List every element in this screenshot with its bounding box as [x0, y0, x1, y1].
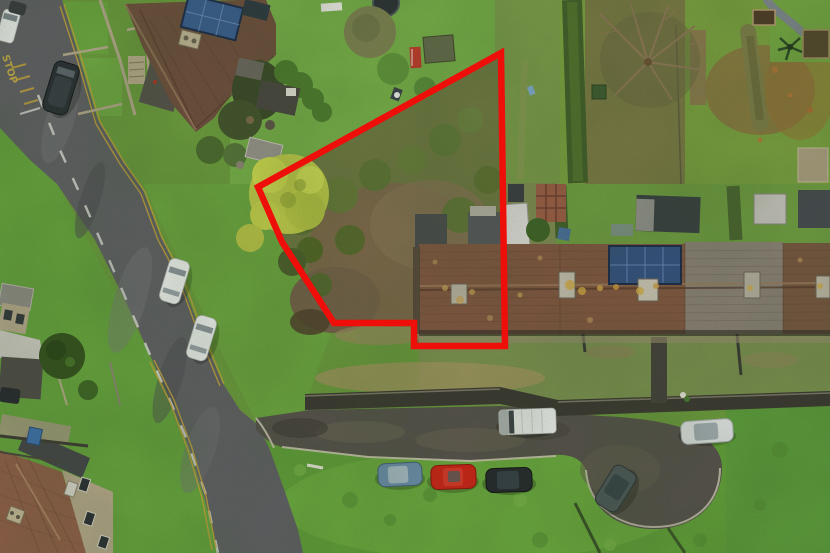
- fine-grain-overlay: [0, 0, 830, 553]
- aerial-photo-canvas: STOP: [0, 0, 830, 553]
- aerial-photo: STOP Aerial drone photograph of a reside…: [0, 0, 830, 553]
- layer-texture: [0, 0, 830, 553]
